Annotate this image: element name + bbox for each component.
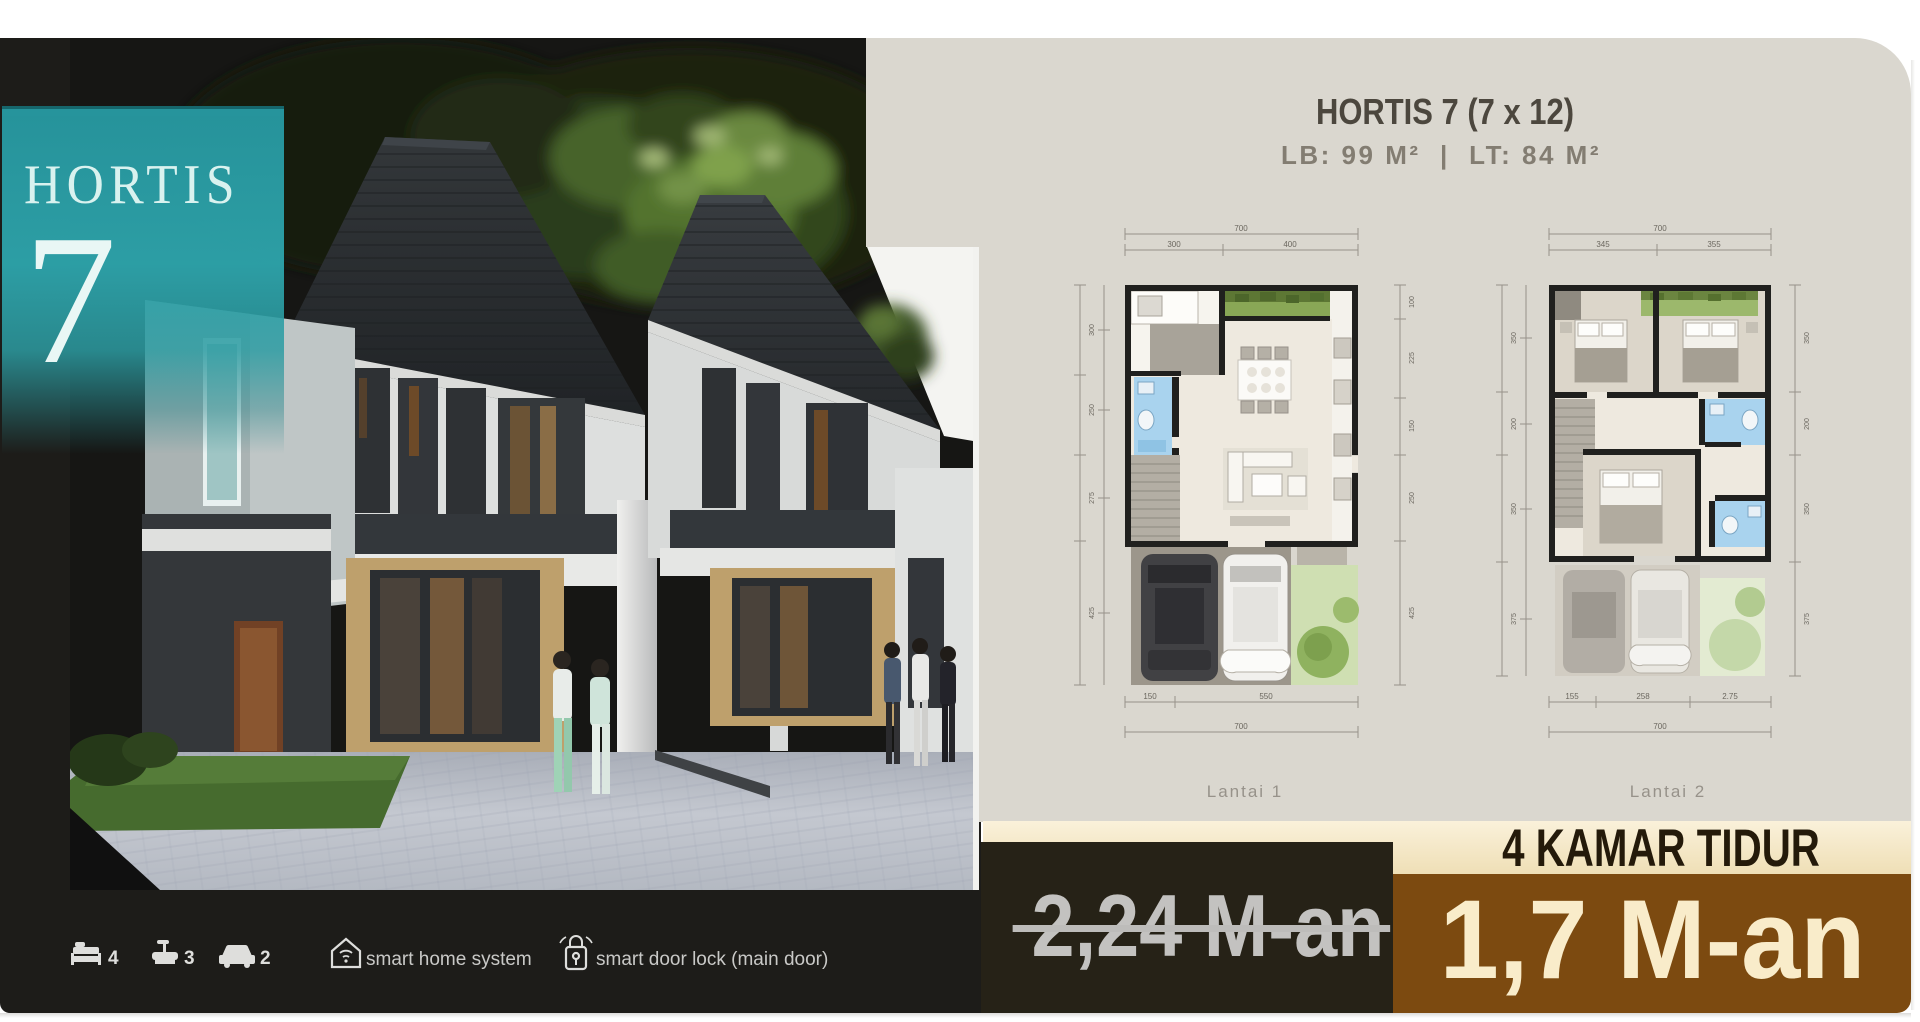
svg-text:smart door lock (main door): smart door lock (main door) — [596, 949, 828, 970]
svg-text:150: 150 — [1143, 692, 1157, 701]
svg-text:225: 225 — [1409, 352, 1416, 364]
svg-text:350: 350 — [1511, 332, 1518, 344]
svg-text:2: 2 — [260, 948, 271, 969]
svg-text:375: 375 — [1511, 613, 1518, 625]
svg-text:550: 550 — [1259, 692, 1273, 701]
svg-text:250: 250 — [1409, 492, 1416, 504]
svg-text:300: 300 — [1167, 240, 1181, 249]
svg-text:258: 258 — [1636, 692, 1650, 701]
svg-text:150: 150 — [1409, 420, 1416, 432]
svg-text:700: 700 — [1653, 224, 1667, 233]
svg-text:350: 350 — [1804, 332, 1810, 344]
svg-text:300: 300 — [1089, 324, 1096, 336]
svg-text:4: 4 — [108, 948, 119, 969]
svg-text:275: 275 — [1089, 492, 1096, 504]
svg-text:350: 350 — [1511, 503, 1518, 515]
svg-text:100: 100 — [1409, 296, 1416, 308]
svg-text:425: 425 — [1089, 607, 1096, 619]
svg-text:700: 700 — [1234, 722, 1248, 731]
svg-text:3: 3 — [184, 948, 195, 969]
svg-text:345: 345 — [1596, 240, 1610, 249]
svg-text:200: 200 — [1804, 418, 1810, 430]
svg-text:700: 700 — [1653, 722, 1667, 731]
svg-text:200: 200 — [1511, 418, 1518, 430]
svg-text:250: 250 — [1089, 404, 1096, 416]
svg-text:425: 425 — [1409, 607, 1416, 619]
svg-text:350: 350 — [1804, 503, 1810, 515]
svg-text:700: 700 — [1234, 224, 1248, 233]
svg-text:155: 155 — [1565, 692, 1579, 701]
svg-text:375: 375 — [1804, 613, 1810, 625]
svg-text:smart home system: smart home system — [366, 949, 532, 970]
svg-text:355: 355 — [1707, 240, 1721, 249]
svg-text:400: 400 — [1283, 240, 1297, 249]
svg-text:2.75: 2.75 — [1722, 692, 1738, 701]
